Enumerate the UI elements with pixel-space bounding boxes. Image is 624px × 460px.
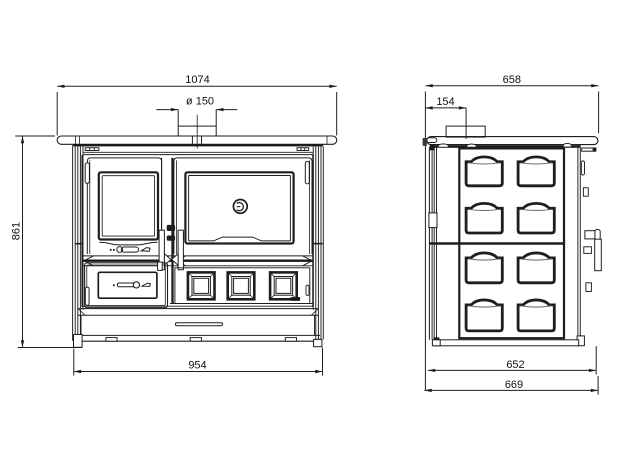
svg-text:861: 861 [11,222,23,240]
svg-text:ø 150: ø 150 [186,95,214,107]
svg-text:669: 669 [505,379,523,391]
svg-text:658: 658 [503,74,521,86]
svg-text:154: 154 [436,96,454,108]
svg-text:954: 954 [188,359,206,371]
svg-text:1074: 1074 [185,74,209,86]
svg-text:652: 652 [506,359,524,371]
